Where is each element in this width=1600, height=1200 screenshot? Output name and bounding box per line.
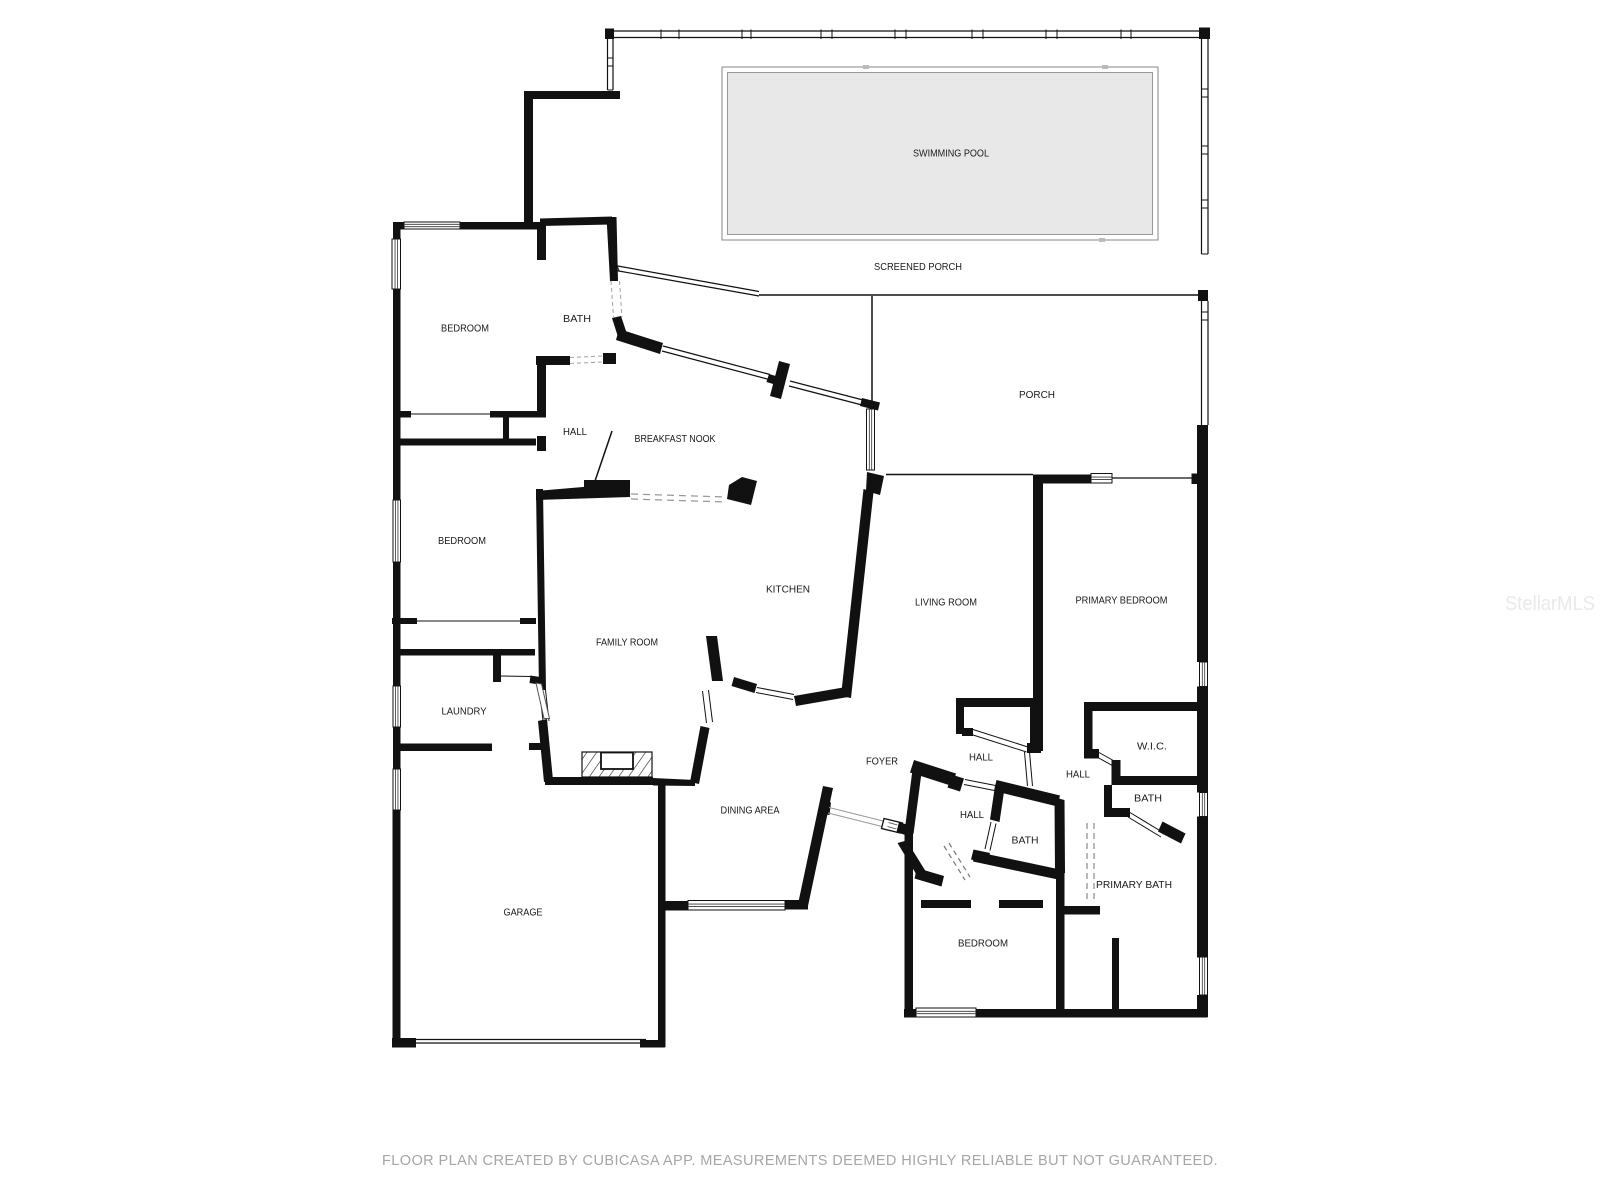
svg-text:PRIMARY BEDROOM: PRIMARY BEDROOM bbox=[1076, 596, 1168, 607]
svg-text:BEDROOM: BEDROOM bbox=[441, 324, 489, 335]
svg-text:HALL: HALL bbox=[563, 427, 587, 438]
svg-text:FLOOR PLAN CREATED BY CUBICASA: FLOOR PLAN CREATED BY CUBICASA APP. MEAS… bbox=[382, 1153, 1218, 1169]
svg-text:StellarMLS: StellarMLS bbox=[1505, 592, 1595, 615]
svg-text:LAUNDRY: LAUNDRY bbox=[442, 707, 487, 718]
svg-text:BREAKFAST NOOK: BREAKFAST NOOK bbox=[635, 434, 716, 445]
svg-text:PORCH: PORCH bbox=[1019, 390, 1055, 401]
svg-text:GARAGE: GARAGE bbox=[504, 908, 543, 919]
svg-text:SCREENED PORCH: SCREENED PORCH bbox=[874, 262, 962, 273]
svg-text:DINING AREA: DINING AREA bbox=[721, 806, 780, 817]
svg-text:SWIMMING POOL: SWIMMING POOL bbox=[913, 149, 989, 160]
svg-text:BATH: BATH bbox=[1012, 836, 1039, 847]
svg-text:FAMILY ROOM: FAMILY ROOM bbox=[596, 638, 658, 649]
svg-text:FOYER: FOYER bbox=[866, 757, 898, 768]
svg-text:HALL: HALL bbox=[969, 753, 993, 764]
svg-text:HALL: HALL bbox=[1066, 770, 1090, 781]
svg-text:BEDROOM: BEDROOM bbox=[438, 536, 486, 547]
svg-text:BATH: BATH bbox=[563, 314, 591, 325]
svg-text:LIVING ROOM: LIVING ROOM bbox=[915, 598, 977, 609]
svg-text:BEDROOM: BEDROOM bbox=[958, 939, 1008, 950]
svg-text:HALL: HALL bbox=[960, 810, 984, 821]
svg-text:PRIMARY BATH: PRIMARY BATH bbox=[1096, 880, 1172, 891]
svg-text:W.I.C.: W.I.C. bbox=[1137, 742, 1167, 753]
svg-text:BATH: BATH bbox=[1134, 794, 1162, 805]
svg-text:KITCHEN: KITCHEN bbox=[766, 585, 810, 596]
